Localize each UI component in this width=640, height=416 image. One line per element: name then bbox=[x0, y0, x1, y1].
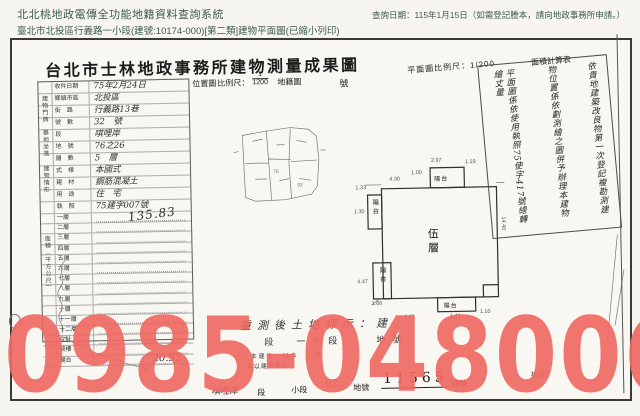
side-label-site: 基地坐落 bbox=[40, 129, 50, 157]
side-label-door: 建物門牌 bbox=[40, 95, 50, 123]
note-column-2: 物位置係依劃測繪之圖併予辦理本建物 bbox=[544, 65, 571, 229]
note-column-3: 平面圖係依使用執照75使字417號總轉繪丈量 bbox=[491, 68, 529, 233]
scale-fraction: 1 1200 bbox=[252, 71, 268, 86]
sketch-parcel-label: 76 bbox=[273, 169, 279, 175]
red-watermark-number: 0985-048006 bbox=[4, 294, 640, 416]
number-label: 號 bbox=[339, 76, 348, 89]
location-map-label: 位置圖 bbox=[192, 78, 216, 89]
scale-label: 比例尺： bbox=[217, 77, 249, 89]
page: { "header": { "system_title": "北北桃地政電傳全功… bbox=[0, 0, 640, 408]
query-date: 查詢日期：115年1月15日（如需登記謄本，請向地政事務所申請。） bbox=[372, 9, 625, 21]
cadastre-map-label: 地籍圖 bbox=[277, 76, 301, 87]
dimension-label: 2.97 bbox=[431, 158, 442, 164]
sketch-parcel-label: 92 bbox=[297, 182, 303, 188]
dimension-label: 1.19 bbox=[465, 159, 476, 165]
balcony-label-left-a: 陽台 bbox=[369, 199, 379, 216]
balcony-label-left-b: 陽台 bbox=[376, 267, 386, 284]
system-title: 北北桃地政電傳全功能地籍資料查詢系統 bbox=[17, 6, 224, 22]
dimension-label: 1.30 bbox=[354, 209, 365, 215]
side-label-condition: 建物情形 bbox=[41, 165, 51, 193]
document-title: 台北市士林地政事務所建物測量成果圖 bbox=[45, 51, 360, 81]
document-subtitle: 臺北市北投區行義路一小段(建號:10174-000)[第二類]建物平面圖(已縮小… bbox=[17, 23, 340, 37]
balcony-label-top: 陽台 bbox=[434, 174, 448, 183]
scale-denominator: 1200 bbox=[252, 79, 268, 86]
dimension-label: 4.47 bbox=[357, 279, 368, 285]
note-column-1: 依貴地建築改良物第一次登記複勘測建 bbox=[584, 61, 611, 225]
vertical-notes-box: 依貴地建築改良物第一次登記複勘測建 物位置係依劃測繪之圖併予辦理本建物 平面圖係… bbox=[477, 54, 622, 239]
dimension-label: 1.00 bbox=[411, 170, 422, 176]
dimension-label: 1.33 bbox=[355, 185, 366, 191]
cadastral-sketch: 76 92 bbox=[232, 120, 330, 208]
dimension-label: 4.30 bbox=[389, 176, 400, 182]
floor-label: 伍層 bbox=[424, 228, 441, 256]
